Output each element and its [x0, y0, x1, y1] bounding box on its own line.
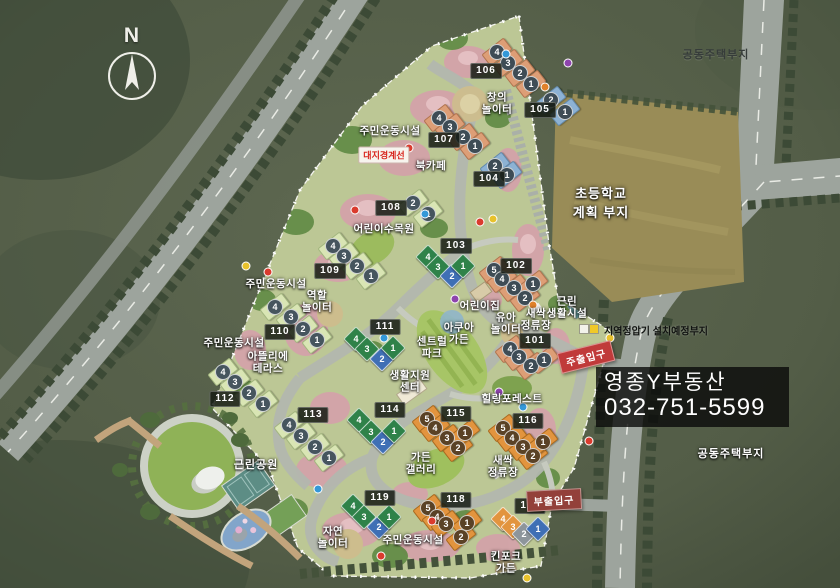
building-number-label: 103: [440, 238, 472, 254]
facility-label: 창의 놀이터: [482, 92, 512, 116]
unit-number: 3: [293, 428, 309, 444]
amenity-marker-dot: [476, 218, 485, 227]
facility-label: 센트럴 파크: [417, 336, 447, 360]
site-plan-map: 4321101543211024321103211042110543211064…: [0, 0, 840, 588]
unit-number: 2: [307, 439, 323, 455]
compass-rose-icon: [104, 48, 160, 104]
unit-number: 3: [510, 522, 515, 532]
unit-number: 2: [525, 448, 541, 464]
amenity-marker-dot: [564, 59, 573, 68]
area-label: 공동주택부지: [698, 445, 765, 461]
amenity-marker-dot: [351, 206, 360, 215]
unit-number: 2: [380, 437, 385, 447]
unit-number: 1: [321, 450, 337, 466]
building-number-label: 109: [314, 263, 346, 279]
unit-number: 1: [391, 426, 396, 436]
building-number-label: 112: [209, 391, 240, 407]
facility-label: 새싹 정류장: [488, 455, 518, 479]
amenity-marker-dot: [523, 574, 532, 583]
unit-number: 2: [450, 440, 466, 456]
building-number-label: 106: [470, 63, 502, 79]
facility-label: 생활지원 센터: [390, 370, 431, 394]
facility-label: 주민운동시설: [360, 126, 421, 138]
amenity-marker-dot: [541, 83, 550, 92]
unit-number: 4: [353, 334, 358, 344]
unit-number: 4: [356, 415, 361, 425]
facility-label: 가든 갤러리: [406, 452, 436, 476]
realtor-watermark: 영종Y부동산 032-751-5599: [596, 367, 789, 427]
facility-label: 북카페: [416, 161, 446, 173]
unit-number: 3: [227, 374, 243, 390]
building-number-label: 104: [473, 171, 505, 187]
facility-label: 어린이집: [460, 301, 501, 313]
building-number-label: 119: [364, 490, 395, 506]
facility-label: 어린이수목원: [354, 224, 415, 236]
unit-number: 2: [295, 321, 311, 337]
unit-number: 2: [453, 529, 469, 545]
unit-number: 1: [557, 104, 573, 120]
amenity-marker-dot: [489, 215, 498, 224]
facility-label: 힐링포레스트: [482, 394, 543, 406]
building-number-label: 108: [375, 200, 407, 216]
unit-number: 1: [460, 261, 465, 271]
unit-number: 4: [500, 514, 505, 524]
area-label: 공동주택부지: [683, 46, 750, 62]
unit-number: 2: [405, 195, 421, 211]
unit-number: 3: [361, 512, 366, 522]
unit-number: 1: [467, 138, 483, 154]
facility-label: 역할 놀이터: [302, 290, 332, 314]
building-number-label: 101: [519, 333, 551, 349]
building-number-label: 105: [524, 102, 556, 118]
north-compass: N: [100, 24, 164, 108]
facility-label: 아쿠아 가든: [444, 322, 474, 346]
unit-number: 1: [457, 425, 473, 441]
building-number-label: 116: [512, 413, 543, 429]
unit-number: 1: [363, 268, 379, 284]
unit-number: 1: [536, 352, 552, 368]
facility-label: 킨포크 가든: [491, 551, 521, 575]
facility-label: 아뜰리에 테라스: [248, 351, 289, 375]
unit-number: 2: [379, 354, 384, 364]
unit-number: 3: [368, 427, 373, 437]
building-number-label: 115: [440, 406, 471, 422]
gas-site-marker: [579, 324, 589, 334]
unit-number: 1: [459, 515, 475, 531]
unit-number: 2: [449, 271, 454, 281]
amenity-marker-dot: [428, 517, 437, 526]
unit-number: 1: [390, 343, 395, 353]
building-number-label: 113: [297, 407, 328, 423]
unit-number: 3: [438, 516, 454, 532]
amenity-marker-dot: [451, 295, 460, 304]
unit-number: 1: [535, 434, 551, 450]
unit-number: 2: [376, 522, 381, 532]
gas-site-marker: [589, 324, 599, 334]
building-number-label: 114: [374, 402, 405, 418]
facility-label: 자연 놀이터: [318, 526, 348, 550]
amenity-marker-dot: [502, 50, 511, 59]
site-boundary-tag: 대지경계선: [358, 147, 409, 164]
north-letter: N: [100, 24, 164, 48]
unit-number: 4: [267, 299, 283, 315]
area-label: 초등학교 계획 부지: [573, 183, 629, 221]
unit-number: 4: [425, 252, 430, 262]
facility-label: 근린 생활시설: [547, 296, 588, 320]
building-number-label: 111: [370, 319, 401, 335]
unit-number: 1: [523, 76, 539, 92]
gas-regulator-label: 지역정압기 설치예정부지: [604, 323, 708, 338]
unit-number: 2: [241, 385, 257, 401]
unit-number: 2: [349, 258, 365, 274]
building-number-label: 110: [264, 324, 295, 340]
building-number-label: 107: [428, 132, 460, 148]
unit-number: 1: [309, 332, 325, 348]
facility-label: 주민운동시설: [204, 338, 265, 350]
unit-number: 1: [386, 512, 391, 522]
amenity-marker-dot: [585, 437, 594, 446]
unit-number: 2: [521, 529, 526, 539]
amenity-marker-dot: [377, 552, 386, 561]
realtor-name: 영종Y부동산: [604, 370, 781, 395]
unit-number: 1: [255, 396, 271, 412]
amenity-marker-dot: [314, 485, 323, 494]
unit-number: 3: [435, 262, 440, 272]
amenity-marker-dot: [421, 210, 430, 219]
entrance-label: 부출입구: [526, 488, 582, 512]
unit-number: 1: [525, 276, 541, 292]
unit-number: 3: [364, 344, 369, 354]
unit-number: 1: [535, 524, 540, 534]
amenity-marker-dot: [264, 268, 273, 277]
unit-number: 4: [350, 501, 355, 511]
facility-label: 유아 놀이터: [491, 312, 521, 336]
realtor-phone: 032-751-5599: [604, 395, 781, 421]
amenity-marker-dot: [242, 262, 251, 271]
facility-label: 주민운동시설: [383, 535, 444, 547]
area-label: 근린공원: [234, 456, 278, 472]
facility-label: 주민운동시설: [246, 279, 307, 291]
building-number-label: 102: [500, 258, 532, 274]
building-number-label: 118: [440, 492, 471, 508]
